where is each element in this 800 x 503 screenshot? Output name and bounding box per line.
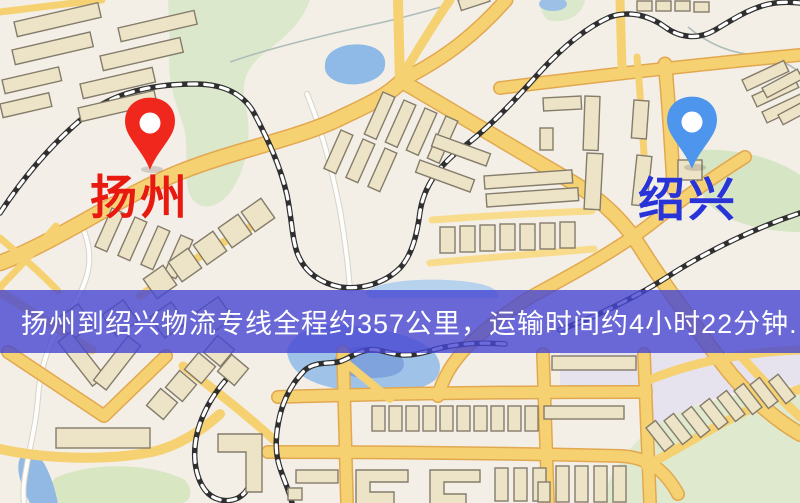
destination-city-label: 绍兴 [638, 176, 738, 223]
origin-pin-body [125, 98, 175, 170]
map-screenshot: 扬州 绍兴 扬州到绍兴物流专线全程约357公里，运输时间约4小时22分钟. [0, 0, 800, 503]
origin-pin-hole [140, 113, 161, 134]
map-canvas[interactable] [0, 0, 800, 503]
origin-pin[interactable] [122, 97, 178, 171]
origin-city-label: 扬州 [90, 174, 190, 221]
destination-pin-body [667, 97, 717, 169]
destination-pin-hole [682, 112, 703, 133]
destination-pin[interactable] [664, 96, 720, 170]
route-info-banner: 扬州到绍兴物流专线全程约357公里，运输时间约4小时22分钟. [0, 290, 800, 353]
route-info-text: 扬州到绍兴物流专线全程约357公里，运输时间约4小时22分钟. [0, 302, 798, 341]
